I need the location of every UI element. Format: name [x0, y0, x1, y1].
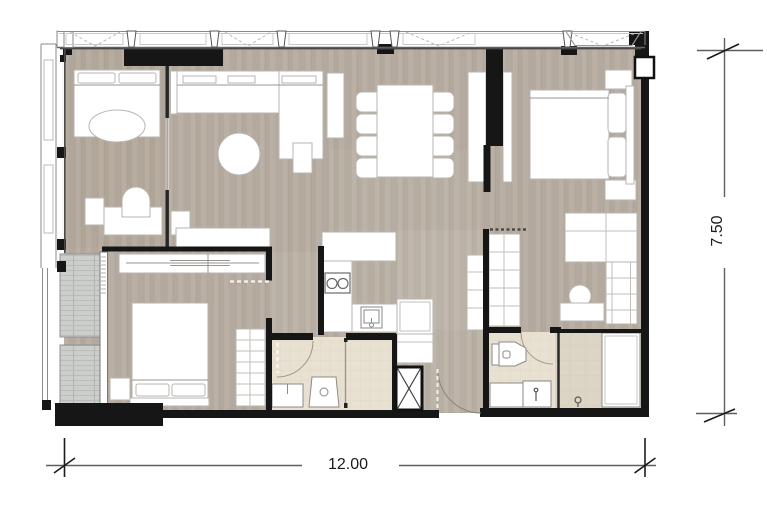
svg-text:12.00: 12.00 [328, 456, 368, 473]
svg-text:7.50: 7.50 [709, 215, 726, 246]
